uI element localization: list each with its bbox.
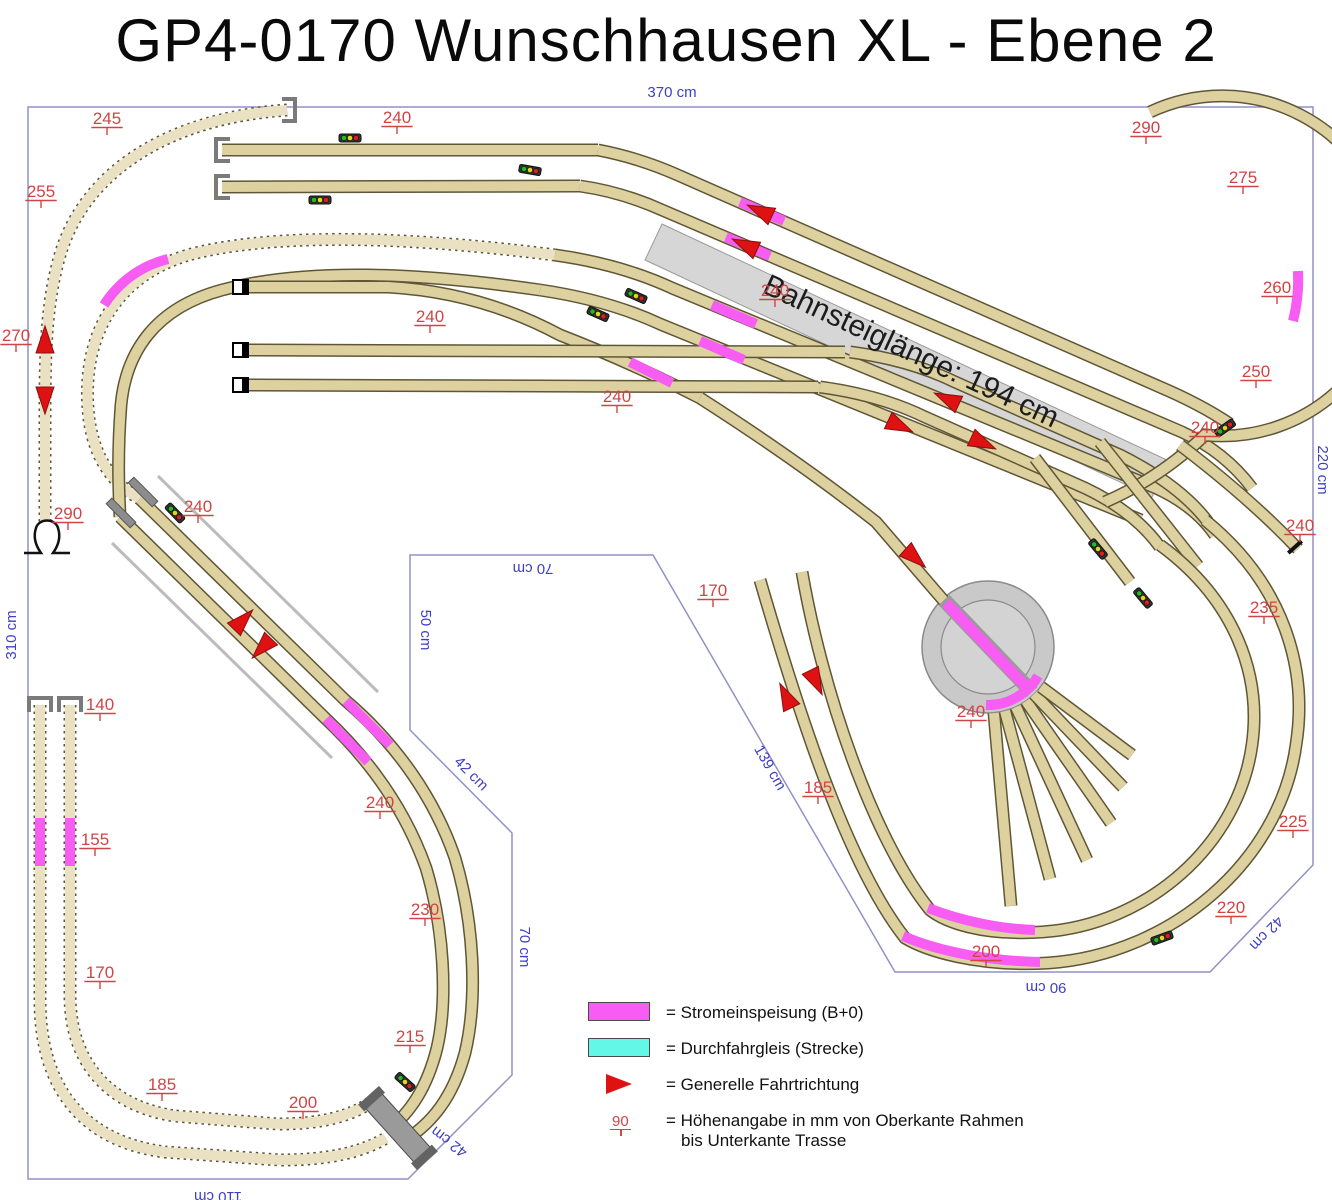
svg-text:255: 255 — [27, 182, 55, 201]
svg-text:155: 155 — [81, 830, 109, 849]
height-marker: 215 — [394, 1027, 425, 1053]
height-marker: 220 — [1215, 898, 1246, 924]
svg-text:240: 240 — [366, 793, 394, 812]
svg-text:235: 235 — [1250, 598, 1278, 617]
buffer-stop-stub-3 — [233, 377, 249, 393]
svg-text:140: 140 — [86, 695, 114, 714]
height-marker: 275 — [1227, 168, 1258, 194]
height-marker: 240 — [364, 793, 395, 819]
svg-text:230: 230 — [411, 900, 439, 919]
through-track-swatch — [588, 1038, 650, 1057]
dimension-label: 90 cm — [1026, 979, 1067, 996]
dimension-label: 110 cm — [194, 1188, 242, 1200]
svg-text:220: 220 — [1217, 898, 1245, 917]
legend-row-through-track: = Durchfahrgleis (Strecke) — [588, 1038, 1068, 1059]
height-marker: 240 — [381, 108, 412, 134]
legend-label: = Generelle Fahrtrichtung — [666, 1074, 859, 1095]
dimension-label: 50 cm — [417, 610, 434, 651]
svg-text:245: 245 — [93, 109, 121, 128]
buffer-stop-stub-2 — [233, 342, 249, 358]
direction-arrows — [36, 197, 999, 712]
dimension-label: 42 cm — [428, 1123, 471, 1161]
svg-text:260: 260 — [1263, 278, 1291, 297]
signal-icon — [394, 1072, 416, 1093]
track-hidden-yard-outer — [40, 705, 386, 1160]
height-marker: 240 — [414, 307, 445, 333]
track-east-stub — [1180, 445, 1298, 549]
direction-arrow-icon — [606, 1074, 632, 1094]
track-hidden-yard-inner — [70, 705, 370, 1124]
svg-text:270: 270 — [2, 326, 30, 345]
height-marker: 250 — [1240, 362, 1271, 388]
legend-row-direction: = Generelle Fahrtrichtung — [588, 1074, 1068, 1095]
dimension-label: 139 cm — [750, 742, 789, 793]
height-marker: 240 — [601, 387, 632, 413]
svg-text:240: 240 — [1191, 418, 1219, 437]
height-marker: 170 — [84, 963, 115, 989]
signal-icon — [339, 134, 361, 142]
signal-icon — [624, 288, 647, 304]
svg-text:170: 170 — [86, 963, 114, 982]
svg-text:240: 240 — [1286, 516, 1314, 535]
svg-text:240: 240 — [383, 108, 411, 127]
height-marker: 170 — [697, 581, 728, 607]
svg-text:240: 240 — [761, 281, 789, 300]
height-marker: 240 — [182, 497, 213, 523]
height-marker: 245 — [91, 109, 122, 135]
dimension-label: 220 cm — [1314, 445, 1331, 494]
height-marker: 290 — [1130, 118, 1161, 144]
legend-row-height: 90 = Höhenangabe in mm von Oberkante Rah… — [588, 1110, 1068, 1151]
legend-label: = Durchfahrgleis (Strecke) — [666, 1038, 864, 1059]
height-marker: 270 — [0, 326, 31, 352]
legend-label: = Höhenangabe in mm von Oberkante Rahmen… — [666, 1110, 1024, 1151]
height-marker: 225 — [1277, 812, 1308, 838]
track-west-curve — [119, 275, 540, 517]
dimension-label: 42 cm — [451, 753, 492, 794]
svg-text:275: 275 — [1229, 168, 1257, 187]
legend-row-power-feed: = Stromeinspeisung (B+0) — [588, 1002, 1068, 1023]
track-hidden-yard-inner-outline — [70, 705, 370, 1124]
signal-icon — [309, 196, 331, 204]
dimension-label: 42 cm — [1246, 913, 1287, 954]
dimension-label: 310 cm — [3, 610, 20, 659]
legend: = Stromeinspeisung (B+0) = Durchfahrglei… — [588, 1002, 1068, 1166]
height-marker: 155 — [79, 830, 110, 856]
signal-icon — [1133, 587, 1153, 609]
signal-icon — [518, 164, 541, 176]
svg-text:290: 290 — [1132, 118, 1160, 137]
height-marker-icon: 90 — [610, 1114, 631, 1130]
dimension-label: 70 cm — [516, 927, 533, 968]
svg-text:170: 170 — [699, 581, 727, 600]
height-marker: 240 — [955, 702, 986, 728]
svg-text:240: 240 — [184, 497, 212, 516]
height-marker: 140 — [84, 695, 115, 721]
svg-text:225: 225 — [1279, 812, 1307, 831]
track-yard-top-2 — [222, 186, 580, 187]
svg-text:185: 185 — [148, 1075, 176, 1094]
svg-text:240: 240 — [957, 702, 985, 721]
track-ramp-2 — [120, 517, 443, 1130]
svg-text:240: 240 — [603, 387, 631, 406]
buffer-stop-stub-1 — [233, 279, 249, 295]
track-west-stub-3 — [240, 385, 818, 387]
svg-text:290: 290 — [54, 504, 82, 523]
svg-text:240: 240 — [416, 307, 444, 326]
power-feed-swatch — [588, 1002, 650, 1021]
svg-text:185: 185 — [804, 778, 832, 797]
svg-text:200: 200 — [289, 1093, 317, 1112]
svg-text:250: 250 — [1242, 362, 1270, 381]
tunnel-portal-icon — [24, 521, 70, 554]
track-west-stub-2 — [240, 350, 845, 352]
height-marker: 255 — [25, 182, 56, 208]
svg-text:200: 200 — [972, 942, 1000, 961]
track-hidden-yard-outer-outline — [40, 705, 386, 1160]
track-ramp-2-outline — [120, 517, 443, 1130]
dimension-label: 70 cm — [513, 560, 554, 577]
height-marker: 185 — [146, 1075, 177, 1101]
dimension-label: 370 cm — [647, 84, 696, 101]
legend-label: = Stromeinspeisung (B+0) — [666, 1002, 864, 1023]
track-plan-page: GP4-0170 Wunschhausen XL - Ebene 2 — [0, 0, 1332, 1200]
svg-text:215: 215 — [396, 1027, 424, 1046]
height-marker: 260 — [1261, 278, 1292, 304]
height-marker: 200 — [287, 1093, 318, 1119]
